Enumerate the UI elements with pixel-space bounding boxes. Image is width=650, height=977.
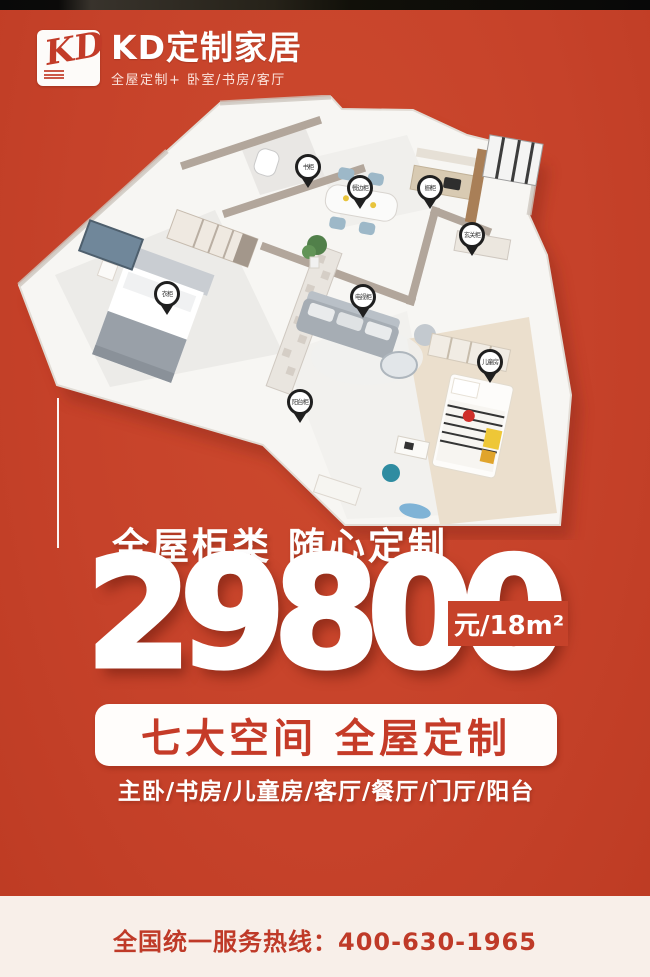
pin-label: 橱柜 [425,185,436,191]
pin-label: 儿童房 [482,359,498,365]
pin-master-bedroom: 衣柜 [154,281,180,315]
floorplan-svg [15,95,635,540]
pin-study: 书柜 [295,154,321,188]
accent-line [57,398,59,548]
hotline-bar: 全国统一服务热线：400-630-1965 [0,896,650,977]
pin-tail-icon [423,198,437,209]
pin-tail-icon [160,304,174,315]
brand-name: KD定制家居 [111,30,302,66]
pin-tail-icon [356,307,370,318]
brand-text: KD定制家居 全屋定制+ 卧室/书房/客厅 [111,30,302,88]
pin-label: 电视柜 [355,294,371,300]
pin-label: 书柜 [303,164,314,170]
pin-tail-icon [483,372,497,383]
pin-kitchen: 橱柜 [417,175,443,209]
window-wall [483,135,543,186]
pin-tail-icon [465,245,479,256]
logo-kd-mark: KD [42,27,106,71]
top-strip [0,0,650,10]
promo-spaces-list: 主卧/书房/儿童房/客厅/餐厅/门厅/阳台 [88,772,564,806]
pin-kids-room: 儿童房 [477,349,503,383]
floorplan-render: 书柜 餐边柜 橱柜 玄关柜 衣柜 电视柜 儿童房 阳台柜 [15,95,635,540]
promo-banner: 七大空间 全屋定制 [95,704,557,766]
pin-label: 餐边柜 [352,185,368,191]
pin-dining: 餐边柜 [347,175,373,209]
pin-label: 玄关柜 [464,232,480,238]
brand-header: KD KD定制家居 全屋定制+ 卧室/书房/客厅 [37,30,302,88]
hotline-text: 全国统一服务热线：400-630-1965 [113,922,537,977]
pin-label: 衣柜 [162,291,173,297]
brand-tagline: 全屋定制+ 卧室/书房/客厅 [111,69,302,88]
pin-tail-icon [353,198,367,209]
promo-banner-text: 七大空间 全屋定制 [141,706,511,764]
pin-label: 阳台柜 [292,399,308,405]
pin-tail-icon [293,412,307,423]
pin-living-room: 电视柜 [350,284,376,318]
logo-fine-print [44,69,64,80]
pin-balcony: 阳台柜 [287,389,313,423]
promo-price-unit: 元/18m² [448,601,568,646]
pin-tail-icon [301,177,315,188]
brand-logo: KD [37,30,100,86]
teal-chair [382,464,400,482]
ad-poster: KD KD定制家居 全屋定制+ 卧室/书房/客厅 [0,0,650,977]
coffee-table [381,352,417,378]
pin-entry: 玄关柜 [459,222,485,256]
